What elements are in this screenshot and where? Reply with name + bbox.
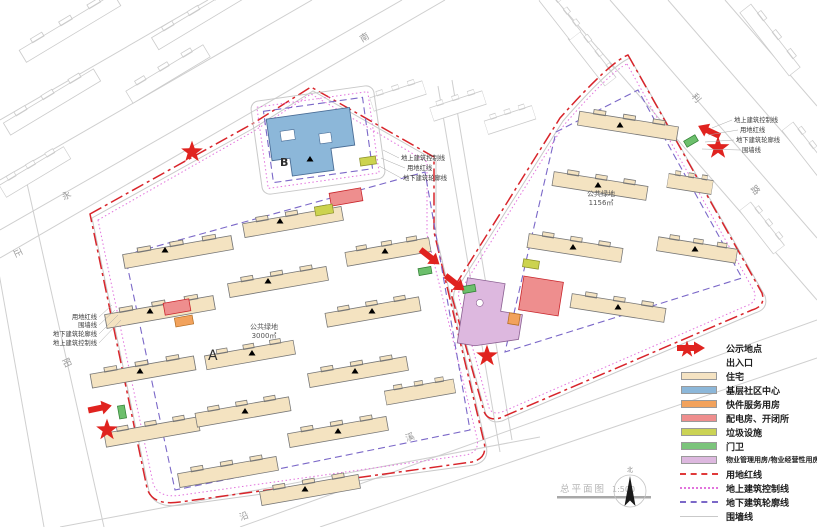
legend-community-center-swatch (681, 386, 717, 394)
annotation-text: 地下建筑轮廓线 (736, 135, 781, 144)
legend-row-express: 快件服务用房 (676, 397, 817, 411)
power-room-building (519, 276, 564, 316)
annotation-text: 围墙线 (78, 320, 98, 329)
public-notice-star (707, 136, 730, 158)
entrance-arrow (87, 399, 113, 418)
plan-title: 总平面图 (560, 483, 606, 495)
legend-express-room-swatch (681, 400, 717, 408)
legend-label: 物业管理用房/物业经营性用房 (726, 455, 817, 465)
residential-building (384, 375, 456, 405)
context-buildings-layer (0, 0, 817, 254)
gatehouse (117, 405, 126, 419)
legend-row-gatehouse: 门卫 (676, 439, 817, 453)
legend-row-red-line: 用地红线 (676, 467, 817, 481)
legend-row-property: 物业管理用房/物业经营性用房 (676, 453, 817, 467)
legend-row-entrance: 出入口 (676, 355, 817, 369)
legend-label: 配电房、开闭所 (726, 412, 789, 425)
power-room-building (329, 188, 363, 206)
express-service-room (174, 315, 193, 327)
legend-control-line-symbol (680, 487, 718, 489)
gatehouse (418, 266, 432, 275)
road-name-char: 路 (748, 183, 763, 198)
legend-label: 垃圾设施 (726, 426, 762, 439)
annotation-text: 地上建筑控制线 (401, 153, 446, 162)
title-underline (557, 496, 651, 499)
residential-building (122, 232, 233, 269)
site-plan-stage: A B 公共绿地 3000㎡ 公共绿地 1156㎡ 用地红线 围墙线 地下建筑轮… (0, 0, 817, 527)
legend-garbage-swatch (681, 428, 717, 436)
legend-label: 用地红线 (726, 468, 762, 481)
residential-building (259, 470, 361, 505)
legend-gatehouse-swatch (681, 442, 717, 450)
legend-wall-line-symbol (680, 516, 718, 517)
legend-row-power-room: 配电房、开闭所 (676, 411, 817, 425)
annotation-text: 地下建筑轮廓线 (403, 173, 448, 182)
legend-label: 快件服务用房 (726, 398, 780, 411)
green-space-a-area: 3000㎡ (252, 332, 277, 340)
parcel-a-label: A (208, 348, 218, 364)
legend-label: 基层社区中心 (726, 384, 780, 397)
legend-label: 公示地点 (726, 342, 762, 355)
residential-building (227, 262, 329, 297)
legend-power-room-swatch (681, 414, 717, 422)
residential-building (89, 352, 196, 388)
road-name-char: 南 (358, 30, 372, 45)
entrance-arrows (87, 120, 723, 418)
road-name-char: 沿 (238, 510, 250, 523)
legend-row-underground-line: 地下建筑轮廓线 (676, 495, 817, 509)
annotation-text: 用地红线 (407, 163, 433, 172)
annotation-text: 地上建筑控制线 (734, 115, 779, 124)
legend-label: 住宅 (726, 370, 744, 383)
express-service-room (508, 313, 521, 326)
annotation-text: 地下建筑轮廓线 (53, 329, 98, 338)
legend-label: 地下建筑轮廓线 (726, 496, 789, 509)
annotation-text: 用地红线 (740, 125, 766, 134)
green-space-right-area: 1156㎡ (589, 199, 614, 207)
residential-building (194, 393, 291, 427)
residential-building (104, 292, 215, 329)
legend-property-swatch (681, 456, 717, 464)
residential-building (656, 233, 738, 263)
road-name-char: 正 (10, 247, 23, 259)
legend-label: 围墙线 (726, 510, 753, 523)
annotation-text: 地上建筑控制线 (53, 338, 98, 347)
north-label: 北 (627, 466, 633, 474)
legend-row-garbage: 垃圾设施 (676, 425, 817, 439)
legend-underground-line-symbol (680, 501, 718, 503)
public-notice-star (476, 345, 498, 366)
legend-red-line-symbol (680, 473, 718, 475)
parcel-a-residential-buildings (89, 202, 455, 505)
residential-building (103, 413, 200, 447)
legend-row-control-line: 地上建筑控制线 (676, 481, 817, 495)
legend: 公示地点 出入口 住宅 基层社区中心 快件服务用房 配电房、开闭所 垃圾设施 门… (676, 341, 817, 523)
parcel-b-label: B (280, 156, 288, 169)
legend-label: 地上建筑控制线 (726, 482, 789, 495)
legend-row-residential: 住宅 (676, 369, 817, 383)
annotation-text: 用地红线 (72, 312, 98, 321)
residential-building (527, 230, 624, 263)
residential-building (307, 352, 409, 387)
legend-residential-swatch (681, 372, 717, 380)
legend-label: 门卫 (726, 440, 744, 453)
green-space-right-name: 公共绿地 (587, 189, 615, 198)
plan-title-block: 总平面图 1:500 (557, 483, 651, 499)
annotation-center: 地上建筑控制线 用地红线 地下建筑轮廓线 (379, 150, 448, 182)
road-name-char: 阳 (59, 357, 73, 370)
green-space-a-name: 公共绿地 (250, 322, 278, 331)
garbage-facility (360, 156, 377, 166)
legend-row-community-center: 基层社区中心 (676, 383, 817, 397)
residential-building (177, 452, 279, 487)
road-name-char: 永 (60, 188, 74, 203)
gatehouse (684, 135, 699, 148)
residential-building (344, 234, 431, 266)
annotation-text: 围墙线 (742, 145, 762, 154)
legend-label: 出入口 (726, 356, 753, 369)
legend-row-wall-line: 围墙线 (676, 509, 817, 523)
road-name-char: 溪 (404, 430, 417, 444)
residential-building (578, 107, 680, 140)
